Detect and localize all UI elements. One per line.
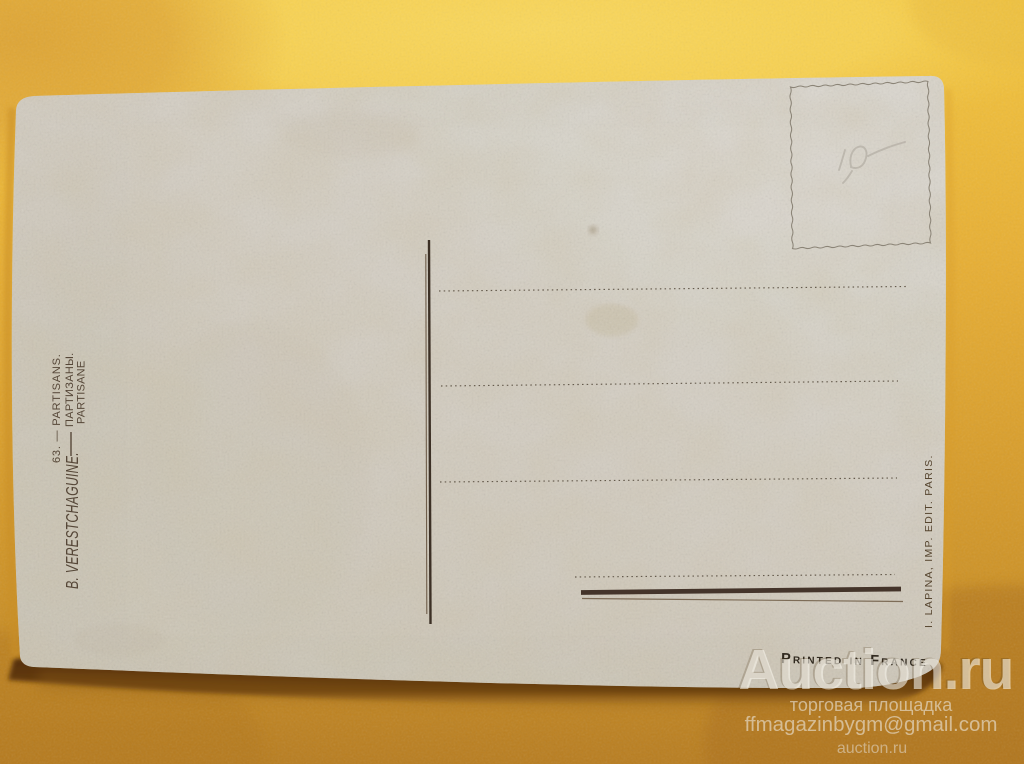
svg-text:I. LAPINA, IMP. EDIT. PARIS.: I. LAPINA, IMP. EDIT. PARIS.: [923, 454, 935, 628]
svg-text:B. VERESTCHAGUINE.: B. VERESTCHAGUINE.: [63, 452, 83, 589]
svg-text:ПАРТИЗАНЫ.: ПАРТИЗАНЫ.: [64, 352, 76, 427]
svg-text:63. — PARTISANS.: 63. — PARTISANS.: [51, 353, 63, 463]
svg-text:PARTISANE: PARTISANE: [76, 360, 88, 424]
svg-text:auction.ru: auction.ru: [837, 740, 907, 757]
svg-text:ffmagazinbygm@gmail.com: ffmagazinbygm@gmail.com: [745, 713, 998, 736]
svg-text:Auction.ru: Auction.ru: [739, 638, 1014, 702]
svg-text:торговая площадка: торговая площадка: [790, 695, 953, 715]
